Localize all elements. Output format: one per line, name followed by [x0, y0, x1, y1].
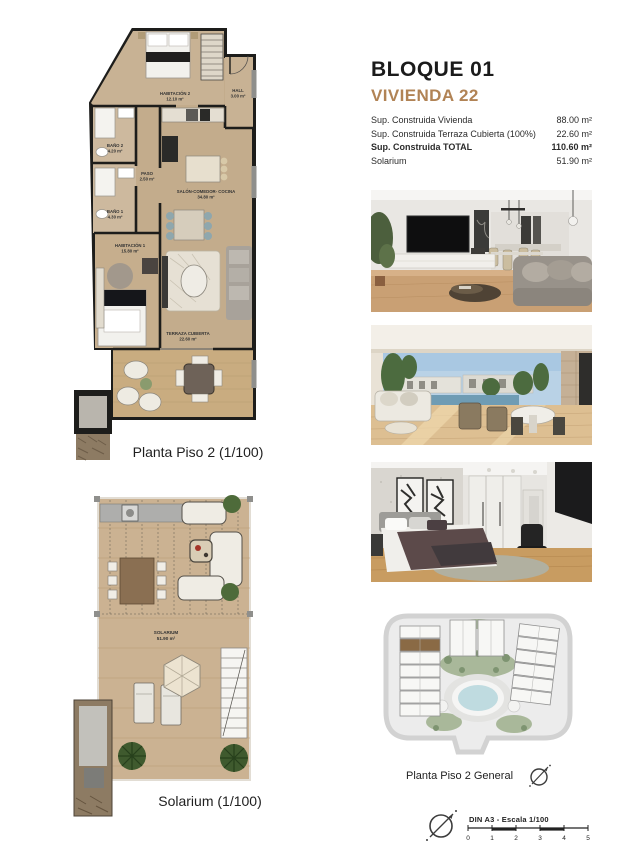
scale-ruler: 0 1 2 3 4 5: [466, 824, 592, 844]
label-paso-area: 2.50 m²: [140, 177, 155, 182]
caption-piso2: Planta Piso 2 (1/100): [80, 444, 316, 460]
label-hall: HALL: [232, 88, 244, 93]
sofa: [513, 256, 592, 306]
label-solarium: SOLARIUM: [154, 630, 179, 635]
ruler-tick-1: 1: [490, 835, 494, 842]
living-area: [162, 246, 252, 320]
siteplan-general: [378, 612, 578, 760]
label-bano1: BAÑO 1: [107, 209, 124, 214]
surface-table: Sup. Construida Vivienda 88.00 m² Sup. C…: [371, 114, 592, 168]
vivienda-title: VIVIENDA 22: [371, 86, 479, 106]
outdoor-kitchen: [100, 504, 184, 522]
coffee-table: [449, 284, 501, 302]
surface-label: Sup. Construida TOTAL: [371, 141, 472, 155]
label-bano1-area: 4.30 m²: [108, 215, 123, 220]
artwork: [474, 210, 489, 252]
surface-row-total: Sup. Construida TOTAL 110.60 m²: [371, 141, 592, 155]
tv: [407, 216, 469, 252]
surface-value: 22.60 m²: [556, 128, 592, 142]
label-bano2: BAÑO 2: [107, 143, 124, 148]
floorplan-solarium: SOLARIUM 51.90 m²: [58, 488, 268, 823]
surface-value: 110.60 m²: [551, 141, 592, 155]
caption-general: Planta Piso 2 General: [406, 770, 513, 782]
label-salon-area: 34.80 m²: [197, 195, 215, 200]
surface-label: Sup. Construida Vivienda: [371, 114, 472, 128]
scale-compass-icon: [424, 808, 460, 842]
label-salon: SALÓN-COMEDOR- COCINA: [177, 189, 235, 194]
nightstand: [371, 534, 383, 556]
label-terraza: TERRAZA CUBIERTA: [166, 331, 209, 336]
surface-label: Sup. Construida Terraza Cubierta (100%): [371, 128, 536, 142]
label-habitacion1-area: 15.80 m²: [121, 249, 139, 254]
surface-value: 88.00 m²: [556, 114, 592, 128]
caption-solarium: Solarium (1/100): [110, 793, 310, 809]
label-paso: PASO: [141, 171, 154, 176]
closet-habitacion2: [201, 34, 223, 80]
surface-row: Sup. Construida Vivienda 88.00 m²: [371, 114, 592, 128]
label-hall-area: 3.00 m²: [231, 94, 246, 99]
surface-row: Sup. Construida Terraza Cubierta (100%) …: [371, 128, 592, 142]
brochure-page: HABITACIÓN 2 12.10 m² HALL 3.00 m² BAÑO …: [0, 0, 624, 846]
bed-habitacion2: [138, 32, 198, 78]
ruler-tick-0: 0: [466, 835, 470, 842]
ruler-tick-2: 2: [514, 835, 518, 842]
surface-row: Solarium 51.90 m²: [371, 155, 592, 169]
surface-label: Solarium: [371, 155, 407, 169]
label-bano2-area: 4.20 m²: [108, 149, 123, 154]
dining-table: [166, 210, 212, 240]
ruler-tick-5: 5: [586, 835, 590, 842]
ruler-tick-3: 3: [538, 835, 542, 842]
stone-planter: [74, 700, 112, 816]
photo-terrace: [371, 325, 592, 445]
floorplan-piso2: HABITACIÓN 2 12.10 m² HALL 3.00 m² BAÑO …: [58, 18, 268, 463]
north-compass-icon: [527, 763, 553, 789]
staircase: [221, 648, 247, 738]
label-solarium-area: 51.90 m²: [157, 636, 176, 641]
photo-bedroom: [371, 462, 592, 582]
label-terraza-area: 22.60 m²: [179, 337, 197, 342]
ruler-tick-4: 4: [562, 835, 566, 842]
scalebar-title: DIN A3 - Escala 1/100: [469, 815, 549, 824]
label-habitacion2-area: 12.10 m²: [166, 97, 184, 102]
bloque-title: BLOQUE 01: [371, 58, 495, 82]
label-habitacion1: HABITACIÓN 1: [115, 243, 146, 248]
label-habitacion2: HABITACIÓN 2: [160, 91, 191, 96]
photo-living-room: [371, 190, 592, 312]
surface-value: 51.90 m²: [556, 155, 592, 169]
solarium-dining: [108, 558, 166, 604]
